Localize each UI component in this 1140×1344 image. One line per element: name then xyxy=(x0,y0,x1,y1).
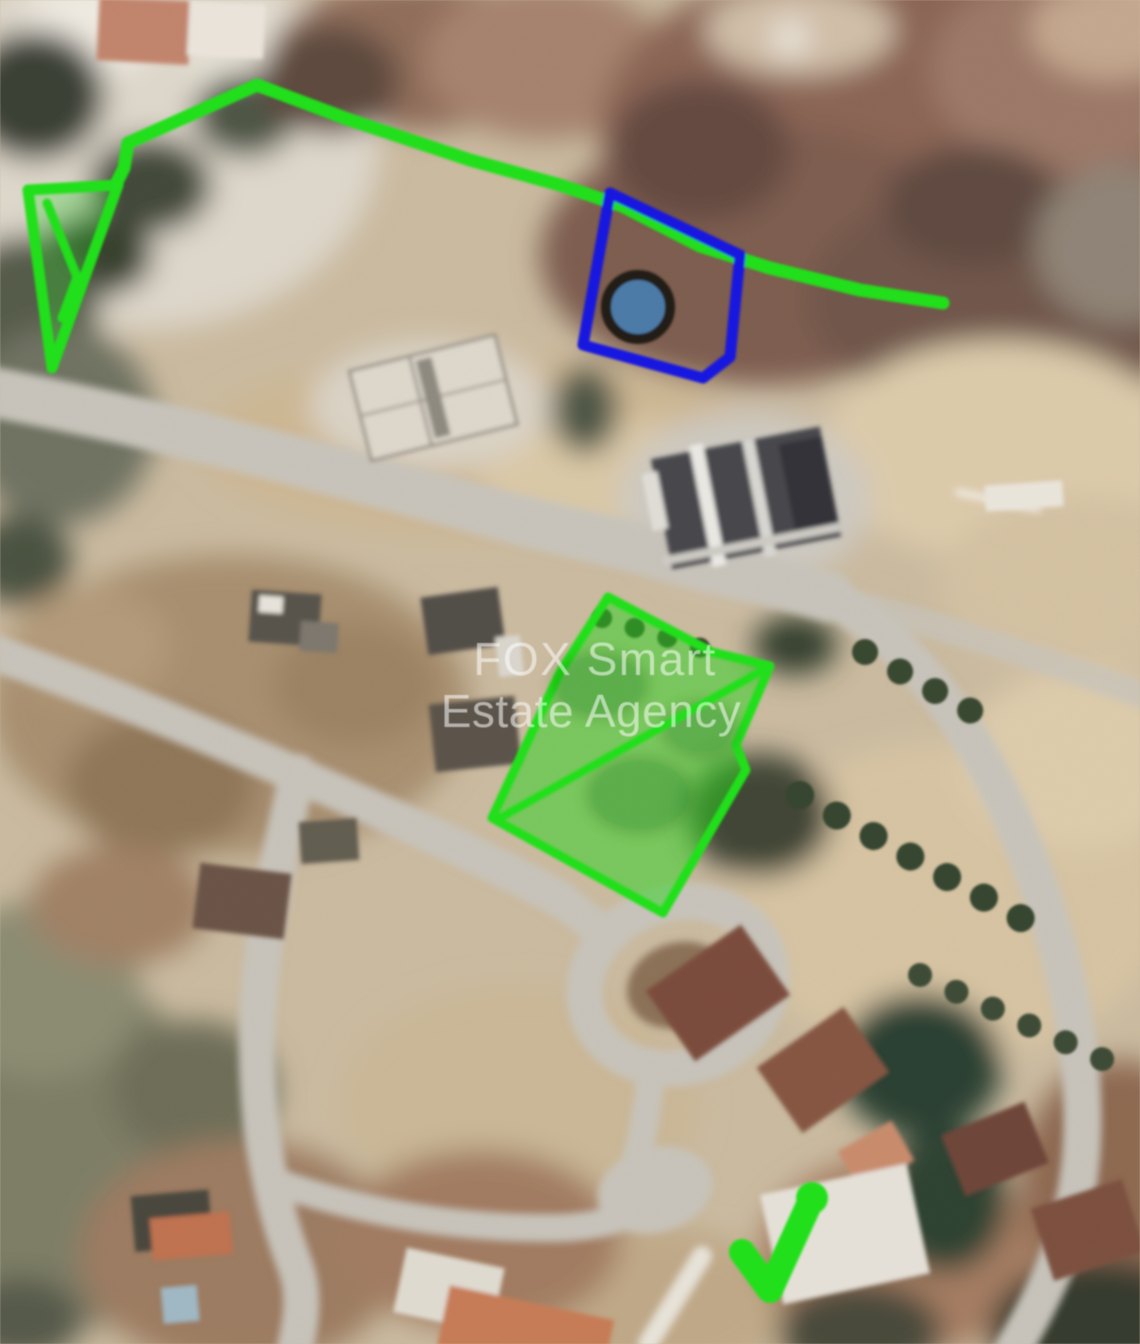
satellite-map: FOX Smart Estate Agency xyxy=(0,0,1140,1344)
satellite-listing-image: FOX Smart Estate Agency xyxy=(0,0,1140,1344)
photo-grain-overlay xyxy=(0,0,1140,1344)
